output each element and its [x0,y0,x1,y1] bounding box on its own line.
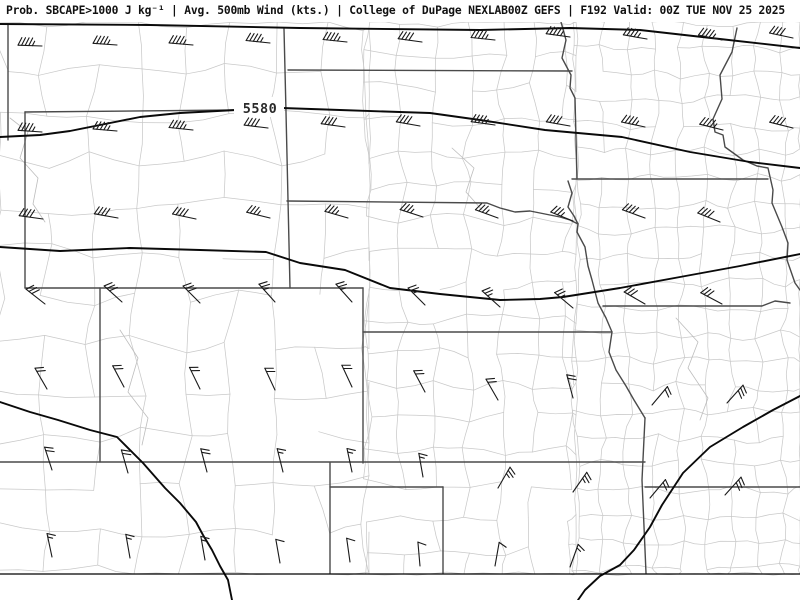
county-line [600,253,627,259]
county-line [701,278,729,287]
county-line [708,333,731,339]
wind-barb-staff [347,538,350,562]
county-line [680,541,684,569]
wind-barb-tick [665,480,669,488]
county-line [702,46,733,47]
county-line [565,52,576,56]
wind-barb-halftick [485,35,488,39]
county-line [574,45,599,47]
county-line [397,223,398,248]
county-line [598,234,631,235]
county-line [707,412,727,415]
county-line [604,148,625,152]
county-line [534,22,537,57]
county-line [631,227,655,234]
state-border-line [642,418,646,573]
county-line [734,149,759,155]
county-line [655,207,679,209]
county-line [506,547,529,556]
county-line [433,517,464,521]
county-line [40,295,95,305]
county-line [363,82,397,85]
county-line [364,321,407,323]
county-line [682,97,704,103]
county-line [679,254,702,259]
county-line [273,435,277,483]
county-line [600,284,629,285]
county-line [574,323,576,357]
county-line [755,97,761,128]
county-line [677,48,680,79]
county-line [781,460,800,462]
wind-barb-tick [478,31,482,38]
county-line [0,391,39,395]
county-line [734,440,759,443]
wind-barb-tick [97,36,101,43]
county-line [684,516,686,541]
county-line [142,253,178,258]
county-line [273,483,314,486]
county-line [652,466,653,487]
county-line [626,566,632,574]
county-line [731,227,735,256]
county-line [736,541,759,544]
county-line [630,357,653,364]
county-line [438,22,468,27]
county-line [93,258,95,306]
county-line [572,358,606,362]
county-line [577,488,598,490]
height-contour-line [0,402,232,600]
county-line [399,291,408,322]
county-line [368,571,369,573]
county-line [142,534,189,537]
county-line [677,207,679,228]
county-line [502,555,506,574]
wind-barb-tick [100,122,104,129]
county-line [706,309,708,333]
county-line [85,335,129,344]
county-line [539,150,571,158]
county-line [462,448,470,488]
county-line [562,280,576,282]
county-line [600,100,633,102]
county-line [785,204,800,205]
county-line [679,490,709,494]
county-line [369,28,371,75]
county-line [538,412,573,413]
wind-barb-tick [330,33,334,40]
county-line [706,309,730,311]
county-line [655,101,659,127]
wind-barb-halftick [107,40,109,44]
county-line [224,151,282,166]
county-line [701,415,707,436]
county-line [364,449,398,454]
county-line [627,234,631,253]
county-line [629,384,633,415]
county-line [780,73,782,100]
wind-barb-tick [486,378,494,379]
county-line [659,101,682,104]
county-line [185,27,187,73]
county-line [707,567,731,570]
county-line [575,72,576,98]
county-line [398,453,406,489]
wind-barb-tick [244,118,249,125]
county-line [599,539,602,573]
county-line [532,355,539,389]
county-line [623,465,629,489]
county-line [780,97,800,100]
county-line [679,201,706,207]
county-line [733,22,760,26]
county-line [433,348,440,381]
county-line [598,489,629,490]
county-line [676,174,708,177]
county-line [728,181,737,208]
county-line [756,518,759,544]
county-line [600,285,606,307]
wind-barb-staff [276,539,280,563]
county-line [314,486,329,533]
weather-map-screen: Prob. SBCAPE>1000 J kg⁻¹ | Avg. 500mb Wi… [0,0,800,600]
county-line [650,151,675,155]
county-line [763,358,788,362]
county-line [0,522,50,532]
county-line [577,488,579,516]
county-line [785,287,788,308]
wind-barb-tick [37,371,45,372]
county-line [39,395,95,398]
county-line [708,516,731,519]
county-line [562,316,565,357]
county-line [129,335,187,352]
county-line [562,224,572,251]
county-line [684,516,709,520]
county-line [685,357,709,360]
county-line [730,361,735,387]
wind-barb-tick [482,288,490,291]
county-line [228,433,236,485]
county-line [277,22,328,24]
county-line [569,545,571,574]
county-line [538,319,539,355]
county-line [235,529,272,535]
county-line [650,127,655,155]
county-line [573,410,601,416]
wind-barb-tick [202,452,210,453]
county-line [599,45,603,72]
county-line [650,155,651,174]
county-line [702,46,710,73]
county-line [432,92,435,123]
wind-barb-tick [22,38,26,46]
wind-barb-halftick [183,125,186,129]
county-line [708,333,709,360]
county-line [472,90,496,92]
county-line [366,118,369,162]
county-line [467,314,503,316]
county-line [400,516,432,521]
county-line [754,46,756,71]
county-line [758,390,788,392]
county-line [497,55,507,90]
county-line [677,226,704,227]
county-line [628,357,629,384]
county-line [529,57,535,83]
county-line [567,514,576,521]
county-line [655,208,656,227]
county-line [0,489,45,490]
wind-barb-tick [173,36,177,43]
county-line [727,387,735,412]
county-line [397,381,434,389]
county-line [224,64,229,114]
county-line [707,25,733,26]
county-line [577,436,606,438]
county-line [581,204,599,208]
county-line [462,152,505,158]
county-line [652,22,656,49]
county-line [497,90,505,119]
county-line [276,347,315,350]
county-line [786,227,800,229]
county-line [579,259,581,279]
county-line [140,427,192,436]
wind-barb-tick [180,36,184,43]
county-line [781,155,785,181]
county-line [0,298,5,341]
county-line [186,64,224,74]
county-line [655,227,658,258]
county-line [630,127,655,130]
county-line [178,74,187,123]
county-line [603,71,631,75]
wind-barb-halftick [486,210,490,214]
county-line [657,332,682,338]
county-line [224,64,276,73]
county-line [780,330,788,358]
county-line [142,69,143,123]
state-border-line [568,181,645,418]
county-line [324,204,326,258]
county-line [598,489,603,515]
county-line [780,330,800,337]
county-line [432,123,472,126]
county-line [433,447,436,487]
county-line [363,479,405,490]
county-line [576,455,577,483]
county-line [534,22,563,24]
county-line [44,435,101,442]
county-line [755,466,761,493]
county-line [321,72,330,115]
wind-barb-tick [347,538,355,540]
wind-barb-tick [482,31,486,38]
county-line [497,482,502,521]
county-line [274,398,326,399]
county-line [135,253,143,293]
county-line [632,515,652,520]
wind-barb-halftick [337,37,340,41]
county-line [628,489,631,516]
county-line [705,520,708,545]
county-line [679,284,685,305]
county-line [759,540,786,544]
county-line [680,73,709,79]
county-line [38,65,99,76]
county-line [178,114,229,123]
county-line [497,83,530,90]
county-line [372,415,398,417]
county-line [684,541,705,545]
wind-barb-tick [741,477,744,485]
county-line [368,382,369,431]
county-line [657,310,658,332]
county-line [600,101,604,122]
county-line [430,186,436,215]
county-line [654,70,658,100]
county-line [187,342,224,353]
wind-barb-tick [471,30,475,37]
county-line [398,447,434,453]
county-line [630,100,632,130]
county-line [601,416,607,438]
wind-barb-tick [738,391,741,399]
county-line [755,312,761,339]
county-line [502,314,539,318]
height-contour-line [578,396,800,600]
county-line [430,215,438,249]
county-line [224,197,281,204]
county-line [755,128,789,131]
county-line [631,70,654,75]
county-line [538,121,540,150]
county-line [400,24,438,27]
county-line [603,539,623,543]
county-line [625,332,657,334]
county-line [731,464,734,486]
wind-barb-tick [201,449,209,450]
wind-barb-tick [183,283,191,286]
county-line [398,151,431,152]
river-line [10,118,45,222]
county-line [497,253,530,256]
wind-barb-tick [475,31,479,38]
wind-barb-halftick [335,211,338,215]
county-line [142,69,186,74]
county-line [532,282,540,318]
county-line [440,282,466,290]
county-line [780,22,783,53]
wind-barb-tick [47,534,55,536]
county-line [781,175,800,182]
county-line [276,22,277,73]
county-line [601,358,605,383]
county-line [599,22,604,45]
county-line [623,465,652,466]
county-line [562,251,576,254]
county-line [782,412,784,436]
county-line [433,521,441,551]
county-line [497,225,504,256]
county-line [680,79,682,103]
county-line [431,152,436,186]
wind-barb-tick [100,36,104,43]
county-line [679,259,685,285]
county-line [366,216,398,223]
wind-barb-tick [485,290,493,293]
county-line [659,434,679,442]
county-line [268,110,281,166]
county-line [49,152,89,169]
county-line [781,181,785,204]
county-line [137,166,139,209]
wind-barb-tick [488,382,496,383]
county-line [626,148,629,180]
county-line [38,27,47,76]
county-line [361,476,369,524]
county-line [497,314,503,354]
county-line [734,464,755,466]
county-line [702,227,704,253]
county-line [497,353,539,355]
county-line [760,492,788,494]
county-line [469,390,473,422]
county-line [627,48,655,50]
county-line [185,353,187,394]
county-line [184,151,224,161]
county-line [728,208,735,227]
county-line [704,126,711,147]
county-line [599,178,602,208]
wind-barb-tick [173,121,177,128]
county-line [780,308,788,330]
county-line [679,436,701,441]
county-line [371,182,407,190]
county-line [756,513,783,518]
county-line [598,260,600,285]
county-line [463,182,471,215]
county-line [462,448,505,456]
county-line [398,322,408,350]
wind-barb-staff [495,542,499,566]
county-line [396,415,397,453]
county-line [603,515,632,516]
county-line [366,114,369,118]
county-line [733,45,754,47]
county-line [463,214,471,248]
county-line [756,493,760,518]
county-line [530,251,562,254]
county-line [0,435,44,445]
county-line [601,515,603,539]
county-line [652,545,659,568]
county-line [731,338,755,340]
wind-barb-tick [93,36,97,43]
wind-barb-tick [276,539,284,541]
wind-barb-tick [104,37,108,44]
county-line [599,45,627,50]
county-line [364,50,396,56]
wind-barb-tick [743,385,746,393]
county-line [435,416,469,422]
county-line [139,427,140,483]
county-line [675,126,683,150]
wind-barb-halftick [32,127,34,131]
county-line [272,260,274,296]
